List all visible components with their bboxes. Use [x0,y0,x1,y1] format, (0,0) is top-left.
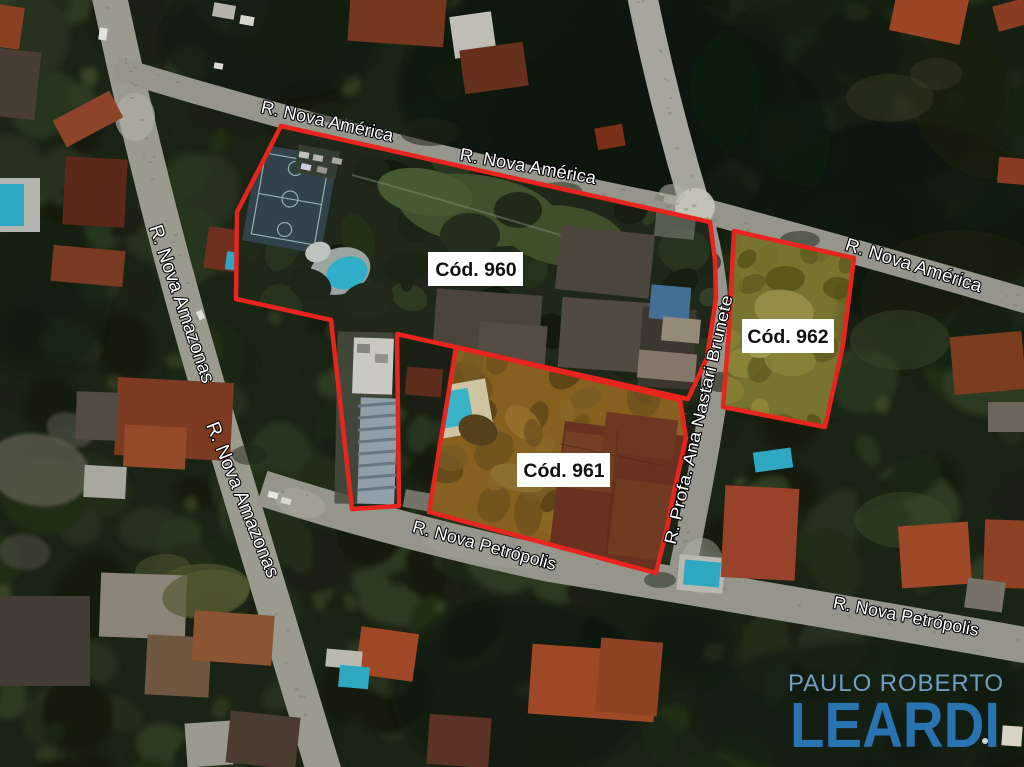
svg-text:Cód. 960: Cód. 960 [435,259,516,281]
svg-text:LEARDI: LEARDI [790,689,1000,761]
svg-text:Cód. 962: Cód. 962 [747,326,828,348]
svg-text:Cód. 961: Cód. 961 [523,460,604,482]
